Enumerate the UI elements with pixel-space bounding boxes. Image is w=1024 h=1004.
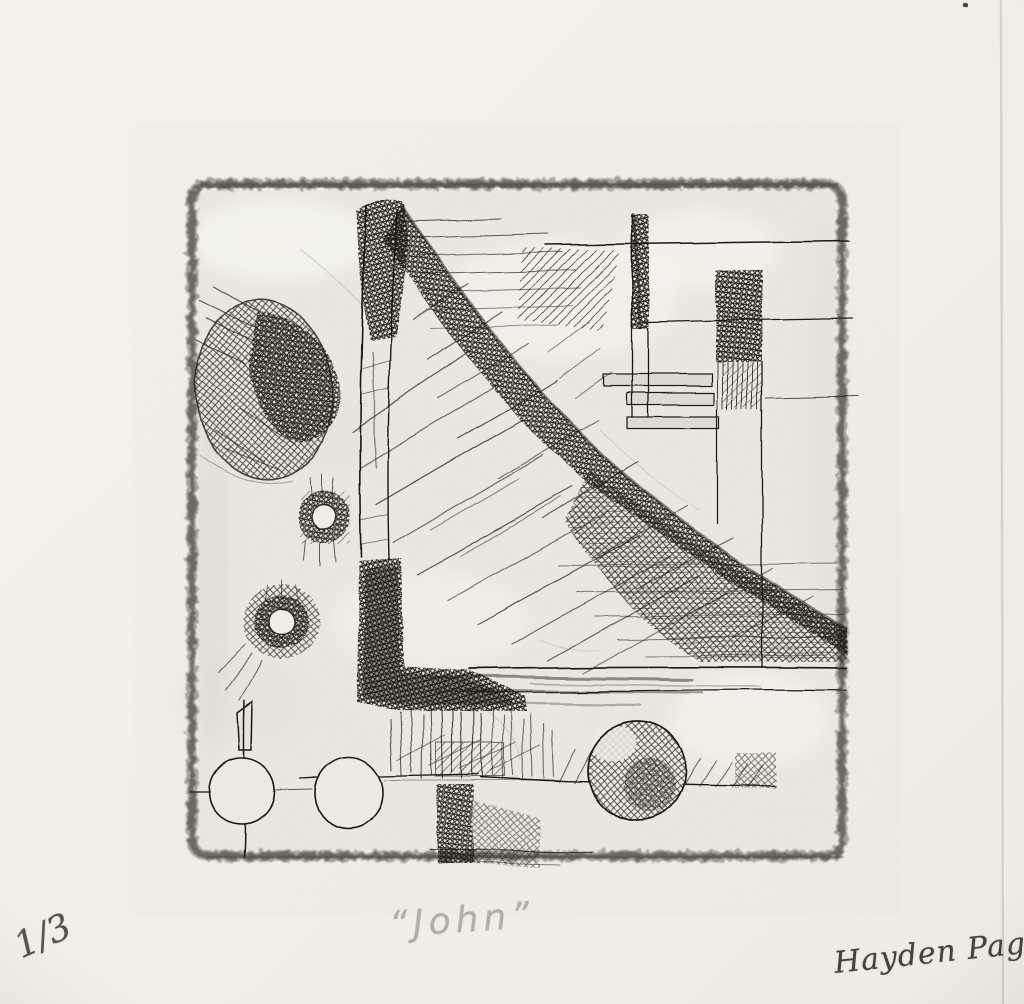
- shaded-sphere: [588, 722, 686, 820]
- etching-print: [0, 0, 1024, 1004]
- dust-speck: [963, 3, 969, 8]
- etching-plate: [180, 184, 858, 868]
- artwork-photo: “John” 1/3 Hayden Page: [0, 0, 1024, 1004]
